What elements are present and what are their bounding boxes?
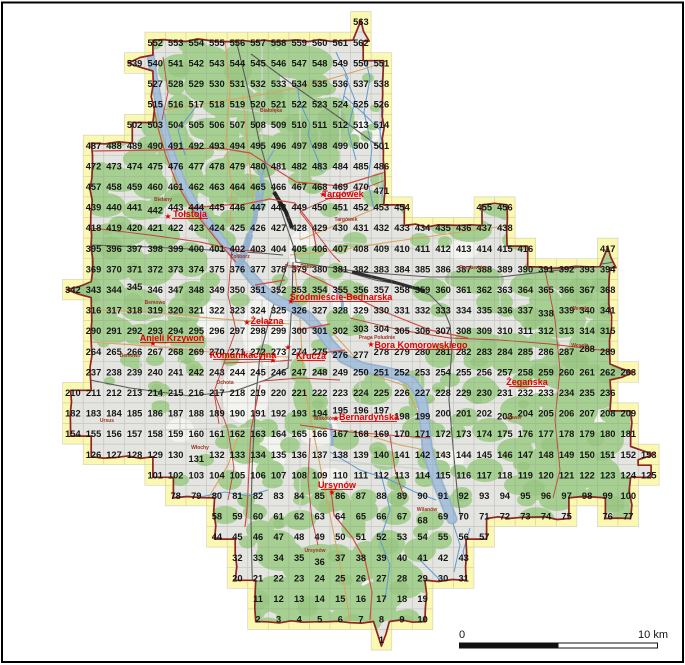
- svg-text:422: 422: [168, 223, 184, 233]
- svg-text:489: 489: [127, 141, 143, 151]
- svg-text:276: 276: [333, 350, 349, 360]
- svg-text:405: 405: [291, 244, 307, 254]
- svg-text:Wawer: Wawer: [506, 415, 522, 421]
- svg-text:290: 290: [86, 326, 102, 336]
- svg-text:54: 54: [417, 532, 428, 542]
- svg-text:Ochota: Ochota: [216, 380, 233, 386]
- svg-text:Rembertów: Rembertów: [459, 265, 486, 271]
- svg-text:247: 247: [291, 367, 307, 377]
- svg-text:491: 491: [168, 141, 184, 151]
- svg-text:375: 375: [209, 264, 225, 274]
- svg-text:221: 221: [291, 388, 307, 398]
- svg-text:508: 508: [250, 120, 266, 130]
- svg-text:506: 506: [209, 120, 225, 130]
- svg-text:156: 156: [106, 429, 122, 439]
- svg-text:269: 269: [189, 347, 205, 357]
- svg-text:391: 391: [538, 264, 554, 274]
- svg-text:Tołstoja: Tołstoja: [173, 209, 208, 219]
- svg-text:10: 10: [417, 615, 427, 625]
- svg-text:308: 308: [456, 326, 472, 336]
- svg-text:406: 406: [312, 244, 328, 254]
- svg-text:115: 115: [436, 470, 451, 480]
- svg-text:335: 335: [477, 306, 493, 316]
- svg-text:20: 20: [232, 573, 242, 583]
- svg-text:243: 243: [209, 367, 225, 377]
- svg-text:541: 541: [168, 58, 184, 68]
- svg-text:97: 97: [561, 491, 571, 501]
- svg-text:176: 176: [518, 429, 534, 439]
- svg-text:429: 429: [312, 223, 328, 233]
- svg-text:172: 172: [435, 429, 451, 439]
- svg-text:474: 474: [127, 161, 143, 171]
- svg-text:31: 31: [459, 573, 469, 583]
- svg-text:475: 475: [147, 161, 163, 171]
- svg-text:56: 56: [459, 532, 469, 542]
- svg-text:325: 325: [271, 306, 287, 316]
- svg-text:189: 189: [209, 409, 225, 419]
- svg-text:111: 111: [354, 470, 369, 480]
- svg-text:476: 476: [168, 161, 184, 171]
- svg-text:423: 423: [189, 223, 205, 233]
- svg-text:552: 552: [147, 38, 163, 48]
- svg-text:159: 159: [168, 429, 184, 439]
- svg-text:143: 143: [435, 450, 451, 460]
- svg-text:404: 404: [271, 244, 287, 254]
- svg-text:352: 352: [271, 285, 287, 295]
- svg-text:52: 52: [376, 532, 386, 542]
- svg-text:173: 173: [456, 429, 472, 439]
- svg-text:163: 163: [250, 429, 266, 439]
- svg-text:439: 439: [86, 203, 102, 213]
- svg-text:483: 483: [312, 161, 328, 171]
- svg-text:Komunikacyjna: Komunikacyjna: [210, 350, 278, 360]
- svg-text:322: 322: [209, 306, 225, 316]
- svg-text:240: 240: [147, 367, 163, 377]
- svg-text:129: 129: [147, 450, 163, 460]
- svg-text:418: 418: [86, 223, 102, 233]
- svg-text:35: 35: [294, 553, 304, 563]
- svg-text:514: 514: [374, 120, 390, 130]
- svg-text:487: 487: [86, 141, 102, 151]
- svg-text:515: 515: [147, 100, 163, 110]
- svg-text:123: 123: [600, 470, 616, 480]
- svg-text:446: 446: [230, 203, 246, 213]
- svg-text:0: 0: [459, 629, 465, 641]
- svg-text:216: 216: [189, 388, 205, 398]
- svg-text:503: 503: [147, 120, 163, 130]
- svg-text:246: 246: [271, 367, 287, 377]
- svg-text:71: 71: [479, 512, 489, 522]
- svg-text:154: 154: [65, 429, 81, 439]
- svg-text:482: 482: [291, 161, 307, 171]
- svg-text:Bernardyńska: Bernardyńska: [339, 412, 400, 422]
- svg-text:45: 45: [232, 532, 242, 542]
- svg-text:140: 140: [374, 450, 390, 460]
- svg-text:431: 431: [353, 223, 369, 233]
- svg-text:193: 193: [291, 409, 307, 419]
- svg-text:351: 351: [250, 285, 266, 295]
- svg-text:298: 298: [250, 326, 266, 336]
- svg-text:261: 261: [579, 367, 595, 377]
- svg-text:62: 62: [294, 512, 304, 522]
- svg-text:300: 300: [291, 326, 307, 336]
- svg-text:310: 310: [497, 326, 513, 336]
- svg-text:436: 436: [456, 223, 472, 233]
- svg-text:504: 504: [168, 120, 184, 130]
- svg-text:165: 165: [291, 429, 307, 439]
- svg-text:428: 428: [291, 223, 307, 233]
- svg-text:59: 59: [232, 512, 242, 522]
- svg-text:169: 169: [374, 429, 390, 439]
- svg-text:263: 263: [621, 367, 637, 377]
- svg-text:297: 297: [230, 326, 246, 336]
- svg-text:133: 133: [230, 450, 246, 460]
- svg-text:440: 440: [106, 203, 122, 213]
- svg-text:227: 227: [415, 388, 431, 398]
- svg-text:518: 518: [209, 100, 225, 110]
- svg-text:79: 79: [191, 491, 201, 501]
- svg-text:426: 426: [250, 223, 266, 233]
- svg-text:458: 458: [106, 182, 122, 192]
- svg-text:505: 505: [189, 120, 205, 130]
- svg-text:182: 182: [65, 409, 81, 419]
- svg-text:244: 244: [230, 367, 246, 377]
- svg-text:398: 398: [147, 244, 163, 254]
- svg-text:376: 376: [230, 264, 246, 274]
- svg-text:2: 2: [255, 615, 260, 625]
- svg-text:Wilanów: Wilanów: [417, 507, 437, 513]
- svg-text:61: 61: [273, 512, 283, 522]
- svg-text:237: 237: [86, 367, 102, 377]
- svg-text:513: 513: [353, 120, 369, 130]
- svg-text:425: 425: [230, 223, 246, 233]
- svg-text:544: 544: [230, 58, 246, 68]
- svg-text:461: 461: [168, 182, 184, 192]
- svg-text:117: 117: [477, 470, 492, 480]
- svg-text:34: 34: [273, 553, 284, 563]
- svg-text:330: 330: [374, 306, 390, 316]
- svg-text:162: 162: [230, 429, 246, 439]
- svg-text:500: 500: [353, 141, 369, 151]
- svg-text:559: 559: [291, 38, 307, 48]
- svg-text:55: 55: [438, 532, 448, 542]
- svg-text:260: 260: [559, 367, 575, 377]
- svg-text:534: 534: [291, 79, 307, 89]
- svg-text:107: 107: [271, 470, 287, 480]
- svg-text:347: 347: [168, 285, 184, 295]
- svg-text:222: 222: [312, 388, 328, 398]
- svg-text:144: 144: [456, 450, 472, 460]
- svg-text:542: 542: [189, 58, 205, 68]
- svg-text:343: 343: [86, 285, 102, 295]
- svg-text:147: 147: [518, 450, 534, 460]
- svg-text:166: 166: [312, 429, 328, 439]
- svg-text:114: 114: [415, 470, 431, 480]
- svg-text:44: 44: [212, 532, 223, 542]
- svg-text:1: 1: [379, 635, 384, 645]
- svg-text:236: 236: [600, 388, 616, 398]
- svg-text:492: 492: [189, 141, 205, 151]
- svg-text:527: 527: [147, 79, 163, 89]
- svg-text:459: 459: [127, 182, 143, 192]
- svg-text:135: 135: [271, 450, 287, 460]
- svg-text:550: 550: [353, 58, 369, 68]
- svg-text:175: 175: [497, 429, 513, 439]
- svg-text:218: 218: [230, 388, 246, 398]
- svg-text:457: 457: [86, 182, 102, 192]
- svg-text:562: 562: [353, 38, 369, 48]
- svg-text:253: 253: [415, 367, 431, 377]
- svg-text:420: 420: [127, 223, 143, 233]
- svg-text:★: ★: [243, 318, 250, 327]
- svg-text:72: 72: [500, 512, 510, 522]
- svg-text:478: 478: [209, 161, 225, 171]
- svg-text:555: 555: [209, 38, 225, 48]
- svg-text:212: 212: [106, 388, 122, 398]
- svg-text:234: 234: [559, 388, 575, 398]
- svg-text:255: 255: [456, 367, 472, 377]
- svg-text:122: 122: [579, 470, 595, 480]
- svg-text:344: 344: [106, 285, 122, 295]
- svg-text:318: 318: [127, 306, 143, 316]
- svg-text:301: 301: [312, 326, 328, 336]
- svg-text:92: 92: [459, 491, 469, 501]
- svg-text:543: 543: [209, 58, 225, 68]
- svg-text:199: 199: [415, 412, 431, 422]
- svg-text:554: 554: [189, 38, 205, 48]
- svg-text:38: 38: [356, 553, 366, 563]
- svg-text:74: 74: [541, 512, 552, 522]
- svg-text:191: 191: [250, 409, 266, 419]
- svg-text:392: 392: [559, 264, 575, 274]
- svg-text:121: 121: [559, 470, 575, 480]
- svg-text:42: 42: [438, 553, 448, 563]
- svg-text:509: 509: [271, 120, 287, 130]
- svg-text:99: 99: [603, 491, 613, 501]
- svg-text:178: 178: [559, 429, 575, 439]
- svg-text:473: 473: [106, 161, 122, 171]
- svg-text:186: 186: [147, 409, 163, 419]
- svg-text:546: 546: [271, 58, 287, 68]
- svg-text:153: 153: [641, 450, 657, 460]
- svg-text:190: 190: [230, 409, 246, 419]
- svg-text:277: 277: [353, 350, 369, 360]
- svg-text:85: 85: [315, 491, 325, 501]
- svg-text:384: 384: [394, 264, 410, 274]
- svg-text:29: 29: [417, 573, 427, 583]
- svg-text:502: 502: [127, 120, 143, 130]
- svg-text:86: 86: [335, 491, 345, 501]
- svg-text:★: ★: [332, 414, 339, 423]
- svg-text:53: 53: [397, 532, 407, 542]
- svg-text:136: 136: [291, 450, 307, 460]
- svg-text:209: 209: [621, 409, 637, 419]
- svg-text:512: 512: [333, 120, 349, 130]
- svg-text:368: 368: [600, 285, 616, 295]
- svg-text:★: ★: [328, 488, 335, 497]
- svg-text:226: 226: [394, 388, 410, 398]
- svg-text:245: 245: [250, 367, 266, 377]
- svg-text:533: 533: [271, 79, 287, 89]
- svg-text:365: 365: [538, 285, 554, 295]
- svg-text:557: 557: [250, 38, 266, 48]
- svg-text:258: 258: [518, 367, 534, 377]
- svg-text:435: 435: [435, 223, 451, 233]
- svg-text:16: 16: [356, 594, 366, 604]
- svg-text:232: 232: [518, 388, 534, 398]
- svg-text:462: 462: [189, 182, 205, 192]
- svg-text:26: 26: [356, 573, 366, 583]
- svg-text:358: 358: [394, 285, 410, 295]
- svg-text:466: 466: [271, 182, 287, 192]
- svg-text:96: 96: [541, 491, 551, 501]
- svg-text:81: 81: [232, 491, 242, 501]
- svg-text:254: 254: [435, 367, 451, 377]
- svg-text:252: 252: [394, 367, 410, 377]
- svg-text:427: 427: [271, 223, 287, 233]
- svg-text:73: 73: [520, 512, 530, 522]
- svg-text:Targówek: Targówek: [335, 217, 358, 223]
- svg-text:456: 456: [497, 203, 513, 213]
- svg-text:68: 68: [417, 516, 427, 526]
- svg-text:83: 83: [273, 491, 283, 501]
- svg-text:161: 161: [209, 429, 225, 439]
- svg-text:95: 95: [520, 491, 530, 501]
- svg-text:460: 460: [147, 182, 163, 192]
- svg-text:174: 174: [477, 429, 493, 439]
- svg-text:359: 359: [415, 285, 431, 295]
- svg-text:449: 449: [291, 203, 307, 213]
- svg-text:299: 299: [271, 326, 287, 336]
- svg-text:386: 386: [435, 264, 451, 274]
- svg-text:158: 158: [147, 429, 163, 439]
- svg-text:84: 84: [294, 491, 305, 501]
- svg-text:372: 372: [147, 264, 163, 274]
- svg-text:49: 49: [315, 532, 325, 542]
- svg-text:437: 437: [477, 223, 493, 233]
- svg-text:15: 15: [335, 594, 345, 604]
- svg-text:371: 371: [127, 264, 143, 274]
- svg-text:12: 12: [273, 594, 283, 604]
- svg-text:168: 168: [353, 429, 369, 439]
- svg-text:177: 177: [538, 429, 554, 439]
- svg-text:495: 495: [250, 141, 266, 151]
- svg-text:538: 538: [374, 79, 390, 89]
- svg-text:307: 307: [435, 326, 451, 336]
- svg-text:350: 350: [230, 285, 246, 295]
- svg-text:145: 145: [477, 450, 493, 460]
- svg-text:146: 146: [497, 450, 513, 460]
- svg-text:450: 450: [312, 203, 328, 213]
- svg-text:155: 155: [86, 429, 102, 439]
- svg-text:445: 445: [209, 203, 225, 213]
- svg-text:43: 43: [459, 553, 469, 563]
- svg-text:484: 484: [333, 161, 349, 171]
- svg-text:110: 110: [333, 470, 348, 480]
- svg-text:230: 230: [477, 388, 493, 398]
- svg-text:328: 328: [333, 306, 349, 316]
- svg-text:536: 536: [333, 79, 349, 89]
- svg-text:8: 8: [379, 615, 384, 625]
- svg-text:419: 419: [106, 223, 122, 233]
- svg-text:170: 170: [394, 429, 410, 439]
- svg-text:Ursus: Ursus: [100, 418, 114, 424]
- svg-text:383: 383: [374, 264, 390, 274]
- svg-text:363: 363: [497, 285, 513, 295]
- svg-text:66: 66: [376, 512, 386, 522]
- svg-text:239: 239: [127, 367, 143, 377]
- svg-text:480: 480: [250, 161, 266, 171]
- svg-text:327: 327: [312, 306, 328, 316]
- svg-text:238: 238: [106, 367, 122, 377]
- svg-text:267: 267: [147, 347, 163, 357]
- svg-text:249: 249: [333, 367, 349, 377]
- svg-text:510: 510: [291, 120, 307, 130]
- svg-text:108: 108: [291, 470, 307, 480]
- svg-text:309: 309: [477, 326, 493, 336]
- svg-text:396: 396: [106, 244, 122, 254]
- svg-text:125: 125: [641, 470, 657, 480]
- svg-text:Włochy: Włochy: [191, 445, 209, 451]
- svg-text:341: 341: [600, 306, 616, 316]
- svg-text:442: 442: [147, 206, 163, 216]
- svg-text:164: 164: [271, 429, 287, 439]
- svg-text:296: 296: [209, 326, 225, 336]
- svg-text:537: 537: [353, 79, 369, 89]
- svg-text:465: 465: [250, 182, 266, 192]
- svg-text:60: 60: [253, 512, 263, 522]
- svg-text:331: 331: [394, 306, 410, 316]
- svg-text:207: 207: [579, 409, 595, 419]
- svg-text:23: 23: [294, 573, 304, 583]
- svg-text:563: 563: [353, 17, 369, 27]
- svg-text:303: 303: [353, 324, 369, 334]
- svg-text:Bemowo: Bemowo: [120, 353, 141, 359]
- svg-text:33: 33: [253, 553, 263, 563]
- svg-text:493: 493: [209, 141, 225, 151]
- svg-text:370: 370: [106, 264, 122, 274]
- svg-text:430: 430: [333, 223, 349, 233]
- svg-text:Bemowo: Bemowo: [145, 300, 166, 306]
- svg-text:556: 556: [230, 38, 246, 48]
- svg-text:381: 381: [333, 264, 349, 274]
- svg-text:407: 407: [333, 244, 349, 254]
- svg-text:181: 181: [621, 429, 637, 439]
- svg-text:501: 501: [374, 141, 390, 151]
- svg-text:151: 151: [600, 450, 616, 460]
- svg-text:208: 208: [600, 409, 616, 419]
- svg-text:124: 124: [621, 470, 637, 480]
- svg-text:467: 467: [291, 182, 307, 192]
- svg-text:421: 421: [147, 223, 163, 233]
- svg-text:48: 48: [294, 532, 304, 542]
- svg-text:285: 285: [518, 347, 534, 357]
- svg-text:535: 535: [312, 79, 328, 89]
- svg-text:46: 46: [253, 532, 263, 542]
- svg-text:317: 317: [106, 306, 122, 316]
- svg-text:106: 106: [250, 470, 266, 480]
- svg-text:333: 333: [435, 306, 451, 316]
- svg-text:224: 224: [353, 388, 369, 398]
- svg-text:540: 540: [147, 58, 163, 68]
- svg-text:516: 516: [168, 100, 184, 110]
- svg-text:76: 76: [603, 512, 613, 522]
- svg-text:479: 479: [230, 161, 246, 171]
- svg-text:★: ★: [287, 297, 294, 306]
- svg-text:526: 526: [374, 100, 390, 110]
- svg-text:91: 91: [438, 491, 448, 501]
- svg-text:229: 229: [456, 388, 472, 398]
